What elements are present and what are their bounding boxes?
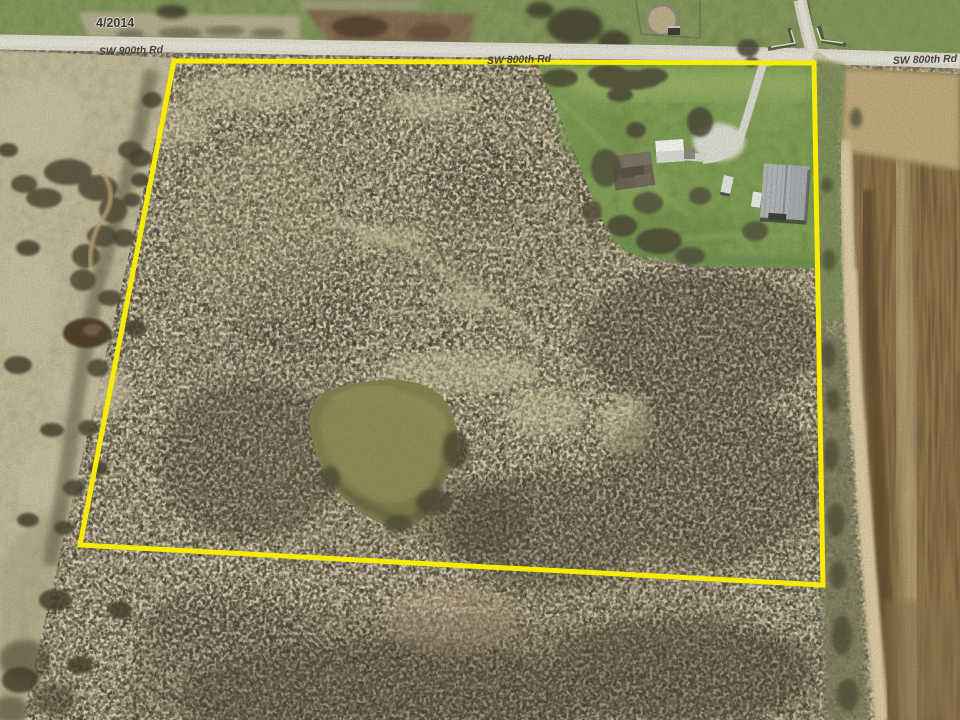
svg-text:SW 800th Rd: SW 800th Rd xyxy=(893,53,958,67)
svg-text:SW 800th Rd: SW 800th Rd xyxy=(487,53,552,67)
svg-text:SW 900th Rd: SW 900th Rd xyxy=(99,44,164,58)
svg-text:4/2014: 4/2014 xyxy=(96,16,134,30)
